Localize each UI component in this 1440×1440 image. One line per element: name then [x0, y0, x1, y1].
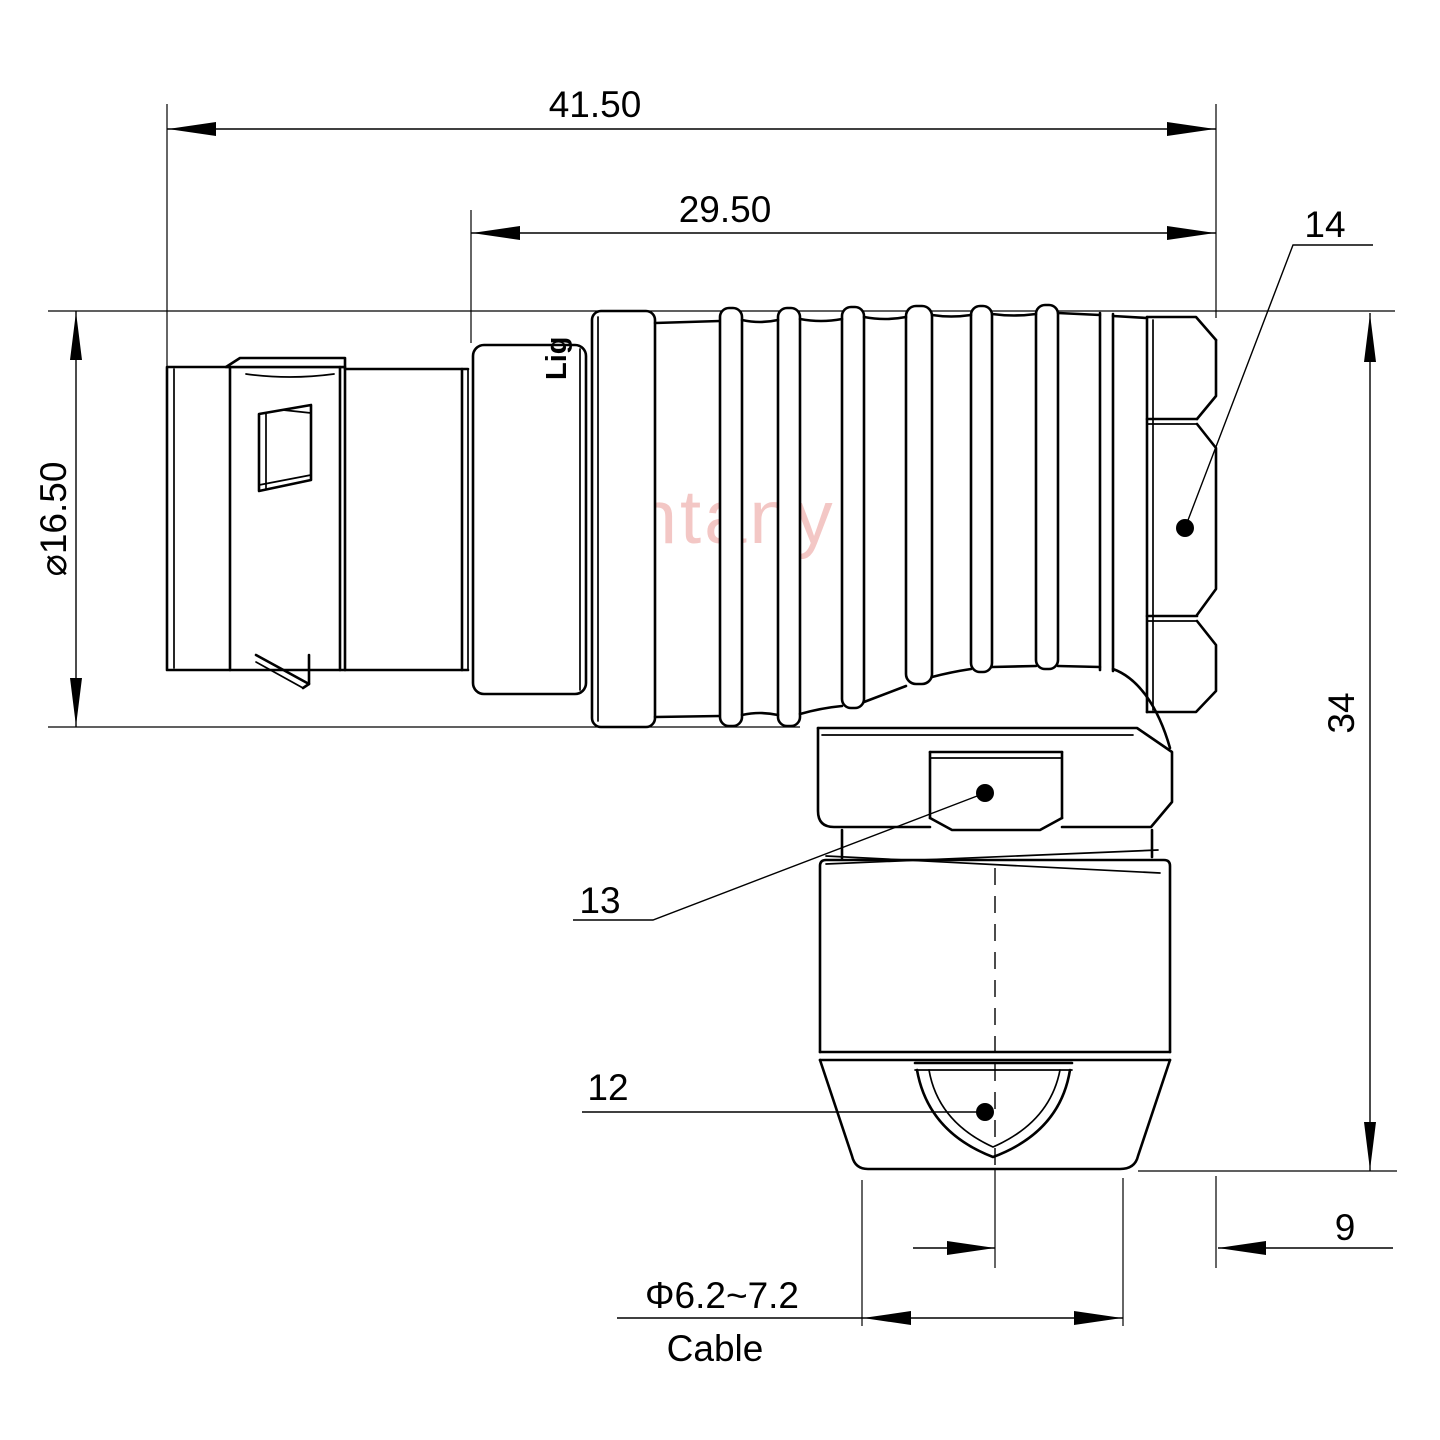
elbow-body [818, 728, 1172, 830]
dim-overall-length-text: 41.50 [549, 84, 642, 125]
wrench-flat [930, 752, 1062, 830]
front-barrel [345, 369, 468, 670]
dim-outer-diameter: ⌀16.50 [33, 311, 82, 727]
dim-front-length-text: 29.50 [679, 189, 772, 230]
dim-total-height-text: 34 [1321, 692, 1362, 733]
callout-12-text: 12 [587, 1067, 628, 1108]
dim-overall-length: 41.50 [167, 84, 1216, 136]
callout-13-text: 13 [579, 880, 620, 921]
release-sleeve: Lig [473, 337, 586, 695]
cable-label: Cable [667, 1328, 764, 1369]
grip-ridges [720, 305, 1170, 748]
thread-neck [842, 830, 1152, 858]
hex-nut [1147, 317, 1216, 712]
dim-outer-diameter-text: ⌀16.50 [33, 462, 74, 577]
connector-drawing: Lightany [0, 0, 1440, 1440]
part-engraving: Lig [541, 337, 573, 381]
dim-cable-diameter-text: Φ6.2~7.2 [645, 1275, 799, 1316]
dim-total-height: 34 [1321, 313, 1376, 1171]
body-ring [592, 311, 655, 727]
dim-side-offset: 9 [913, 1207, 1393, 1255]
callout-12-cone: 12 [582, 1067, 994, 1121]
drawing-canvas: Lightany [0, 0, 1440, 1440]
dim-cable-diameter: Φ6.2~7.2 Cable [617, 1275, 1123, 1369]
callout-14-hex-nut: 14 [1176, 204, 1373, 537]
dim-front-length: 29.50 [471, 189, 1216, 240]
coupling-nut [167, 358, 345, 688]
callout-14-text: 14 [1304, 204, 1345, 245]
dim-side-offset-text: 9 [1335, 1207, 1356, 1248]
